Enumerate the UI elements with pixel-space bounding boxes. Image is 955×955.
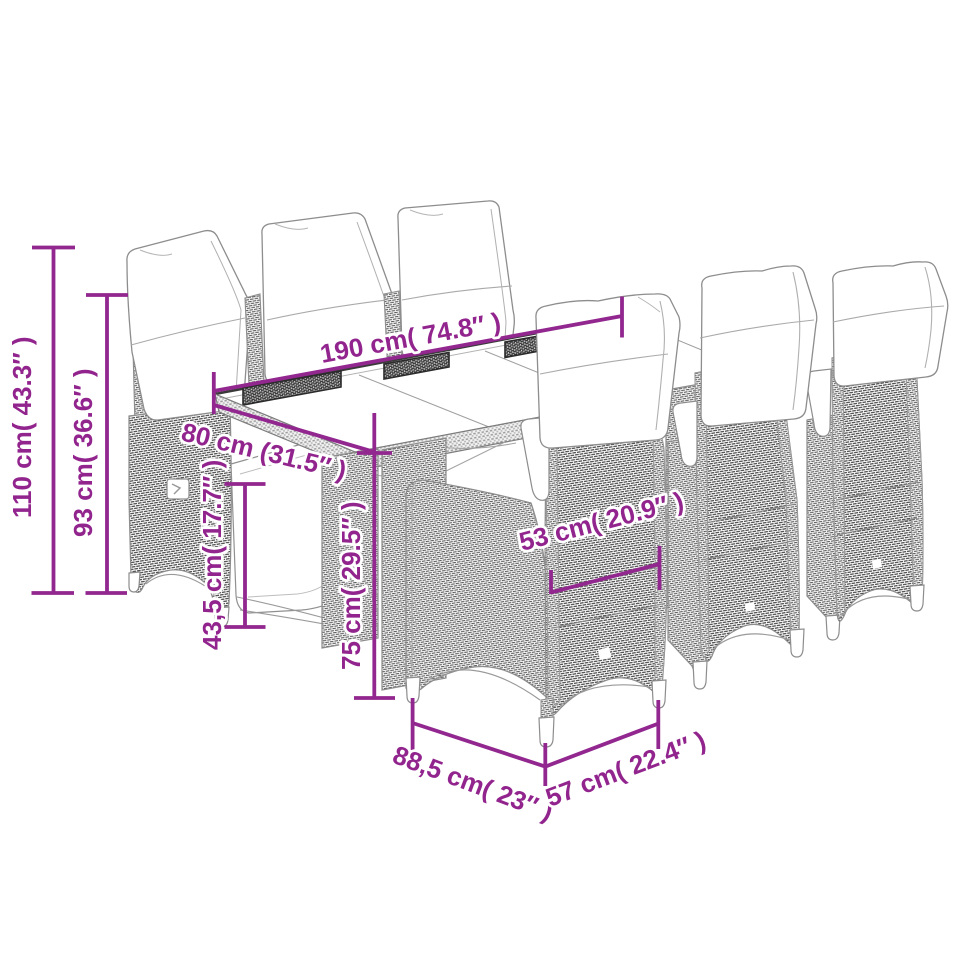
- svg-text:43,5 cm( 17.7″ ): 43,5 cm( 17.7″ ): [197, 460, 227, 650]
- svg-text:110 cm( 43.3″ ): 110 cm( 43.3″ ): [7, 336, 37, 518]
- svg-text:75 cm( 29.5″ ): 75 cm( 29.5″ ): [336, 501, 366, 670]
- svg-text:93 cm( 36.6″ ): 93 cm( 36.6″ ): [68, 368, 98, 537]
